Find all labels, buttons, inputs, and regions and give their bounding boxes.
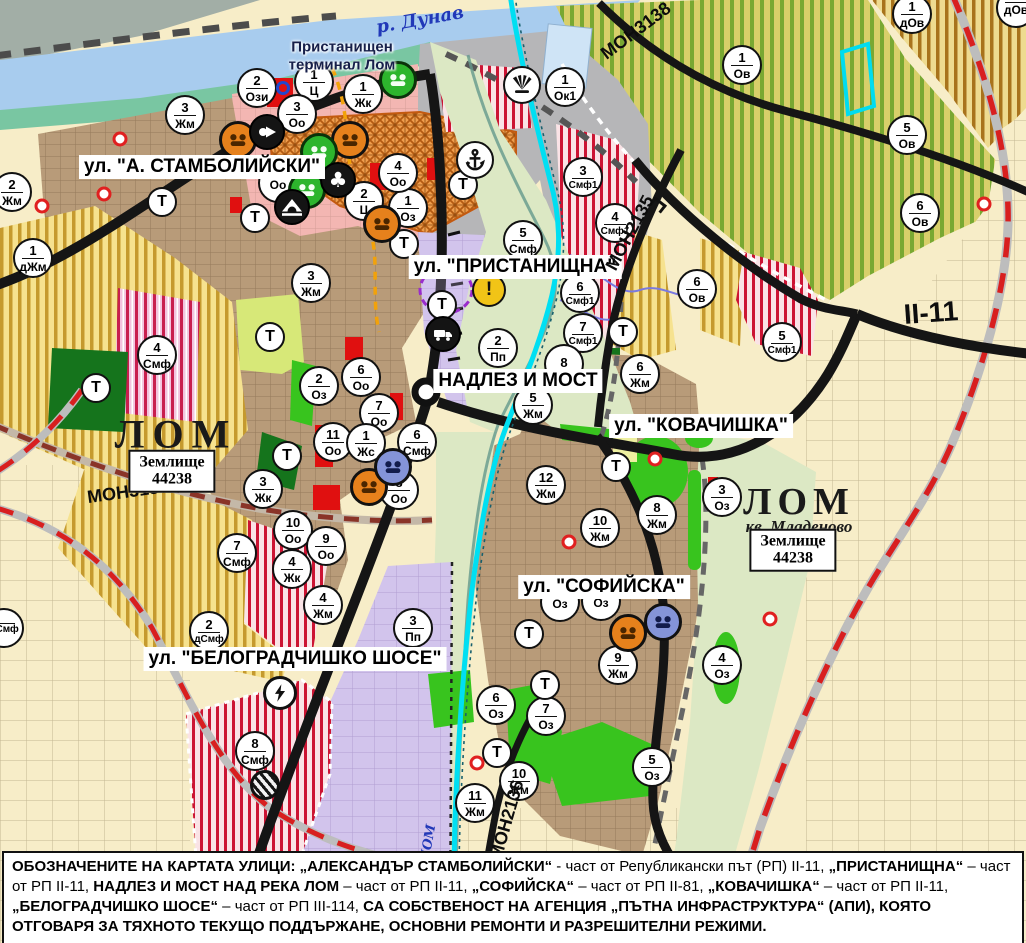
zone-marker: 2дСмф — [189, 611, 229, 651]
zone-marker-code: Жк — [255, 492, 272, 504]
zone-marker-number: 4 — [153, 341, 160, 354]
zone-marker-code: Оз — [593, 597, 608, 609]
zone-marker-code: Пп — [405, 631, 421, 643]
zone-marker-number: 5 — [903, 121, 910, 134]
zone-marker-number: 7 — [542, 702, 549, 715]
zone-marker-code: Оз — [311, 389, 326, 401]
zone-marker: 8Смф — [235, 731, 275, 771]
legend-note-segment: - част от Републикански път (РП) II-11, — [552, 858, 828, 875]
zone-marker-number: 7 — [233, 539, 240, 552]
zone-marker-number: 4 — [288, 555, 295, 568]
zone-marker: 4Оз — [702, 645, 742, 685]
zone-marker: 5Жм — [513, 385, 553, 425]
zone-marker: 6Оо — [341, 357, 381, 397]
zone-marker: 1дОв — [892, 0, 932, 34]
legend-note-segment: „БЕЛОГРАДЧИШКО ШОСЕ“ — [12, 898, 218, 915]
heritage-green-icon — [379, 61, 417, 99]
zone-marker-number: 6 — [636, 360, 643, 373]
t-marker: Т — [601, 452, 631, 482]
fraction-bar — [589, 528, 611, 529]
legend-note-segment: – част от РП II-11, — [339, 878, 472, 895]
fraction-bar — [226, 553, 248, 554]
zone-marker: 1Ов — [722, 45, 762, 85]
red-dot-marker — [470, 756, 485, 771]
red-dot-marker — [562, 535, 577, 550]
zone-marker-code: Смф1 — [566, 297, 595, 307]
zone-marker-number: 1 — [362, 429, 369, 442]
zone-marker: 5Смф — [503, 220, 543, 260]
zone-marker-number: 2 — [253, 74, 260, 87]
zone-marker-code: Жм — [175, 118, 195, 130]
fraction-bar — [308, 386, 330, 387]
zone-marker: 6Жм — [620, 354, 660, 394]
t-marker: Т — [255, 322, 285, 352]
zone-marker-number: 5 — [648, 753, 655, 766]
fraction-bar — [487, 348, 509, 349]
zone-marker-code: Оз — [552, 598, 567, 610]
fraction-bar — [388, 490, 410, 491]
zone-marker-number: 1 — [738, 51, 745, 64]
arrow-right-icon — [249, 114, 285, 150]
red-dot-marker — [648, 452, 663, 467]
zone-marker: 3Жк — [243, 469, 283, 509]
zone-marker-code: Жм — [301, 286, 321, 298]
zone-marker-code: Жм — [590, 531, 610, 543]
zone-marker-code: Оз — [538, 719, 553, 731]
zone-marker: 3Жм — [291, 263, 331, 303]
zone-marker-number: 2 — [494, 334, 501, 347]
zone-marker-number: 6 — [576, 280, 583, 293]
zone-marker: 6Ов — [900, 193, 940, 233]
truck-icon — [425, 316, 461, 352]
fraction-bar — [572, 178, 594, 179]
zone-marker-code: дЖм — [19, 261, 46, 273]
zone-marker-number: 3 — [718, 483, 725, 496]
zone-marker-code: Ов — [689, 292, 706, 304]
fraction-bar — [572, 334, 594, 335]
red-dot-marker — [977, 197, 992, 212]
zone-marker-code: Оо — [289, 117, 306, 129]
fraction-bar — [512, 240, 534, 241]
zone-marker: 8Жм — [637, 495, 677, 535]
t-marker: Т — [482, 738, 512, 768]
fraction-bar — [901, 14, 923, 15]
zone-marker: 10Жм — [499, 761, 539, 801]
zone-marker-number: 10 — [512, 767, 526, 780]
zone-marker-code: Смф1 — [768, 346, 797, 356]
zone-marker-code: Смф — [143, 358, 171, 370]
zone-marker-number: 2 — [8, 178, 15, 191]
zone-marker: 4Смф1 — [595, 203, 635, 243]
zone-marker-number: 1 — [908, 0, 915, 13]
fraction-bar — [553, 370, 575, 371]
zone-marker-code: Жм — [313, 608, 333, 620]
legend-note-segment: – част от РП II-81, — [574, 878, 708, 895]
fraction-bar — [397, 208, 419, 209]
anchor-icon — [456, 141, 494, 179]
legend-note-segment: НАДЛЕЗ И МОСТ НАД РЕКА ЛОМ — [93, 878, 339, 895]
zone-marker: 3Смф1 — [563, 157, 603, 197]
zone-marker: 4Оо — [378, 153, 418, 193]
fraction-bar — [629, 374, 651, 375]
t-marker: Т — [272, 441, 302, 471]
red-dot-marker — [35, 199, 50, 214]
zone-marker-number: 3 — [181, 101, 188, 114]
zone-marker-code: Смф1 — [569, 337, 598, 347]
fraction-bar — [303, 82, 325, 83]
zone-marker-number: 9 — [614, 651, 621, 664]
fraction-bar — [711, 497, 733, 498]
zone-marker: дСмф — [0, 608, 24, 648]
fraction-bar — [535, 716, 557, 717]
zone-marker-code: Оз — [400, 211, 415, 223]
fraction-bar — [282, 530, 304, 531]
zone-marker-number: 1 — [29, 244, 36, 257]
legend-note: ОБОЗНАЧЕНИТЕ НА КАРТАТА УЛИЦИ: „АЛЕКСАНД… — [2, 851, 1024, 943]
zone-marker-number: 1 — [561, 73, 568, 86]
zone-marker: 9Оо — [306, 526, 346, 566]
zone-marker: 3Жм — [165, 95, 205, 135]
fraction-bar — [244, 751, 266, 752]
zone-marker-number: 6 — [693, 275, 700, 288]
fraction-bar — [604, 224, 626, 225]
zone-marker-number: 5 — [778, 329, 785, 342]
fraction-bar — [312, 605, 334, 606]
zone-marker-code: Жм — [630, 377, 650, 389]
fraction-bar — [731, 65, 753, 66]
zone-marker: 5Ов — [887, 115, 927, 155]
fraction-bar — [522, 405, 544, 406]
fraction-bar — [22, 258, 44, 259]
fraction-bar — [353, 201, 375, 202]
zone-marker-code: Оз — [488, 708, 503, 720]
zone-marker-code: Жк — [284, 572, 301, 584]
zone-marker-number: 3 — [307, 269, 314, 282]
warning-icon: ! — [472, 273, 506, 307]
zone-marker-code: Оо — [391, 493, 408, 505]
legend-note-segment: – част от РП II-11, — [820, 878, 948, 895]
zone-marker-code: Жк — [355, 97, 372, 109]
heritage-blue-icon — [644, 603, 682, 641]
zone-marker: 4Смф — [137, 335, 177, 375]
fraction-bar — [315, 546, 337, 547]
fraction-bar — [896, 135, 918, 136]
legend-note-segment: – част от РП III-114, — [218, 898, 363, 915]
zone-marker-number: 6 — [916, 199, 923, 212]
legend-note-segment: „СОФИЙСКА“ — [472, 878, 574, 895]
heritage-orange-icon — [609, 614, 647, 652]
t-marker: Т — [81, 373, 111, 403]
zone-marker-code: Жс — [357, 446, 375, 458]
zone-marker-number: 8 — [560, 356, 567, 369]
fraction-bar — [909, 213, 931, 214]
zone-marker-number: 11 — [468, 789, 482, 802]
zone-marker-code: Жм — [608, 668, 628, 680]
zone-marker-code: Оо — [270, 179, 287, 191]
fraction-bar — [355, 443, 377, 444]
zone-marker-code: Оз — [644, 770, 659, 782]
zone-marker-code: Смф — [241, 754, 269, 766]
t-marker: Т — [514, 619, 544, 649]
fraction-bar — [368, 413, 390, 414]
zone-marker: 1дЖм — [13, 238, 53, 278]
zone-marker-number: 12 — [539, 471, 553, 484]
zone-marker-code: Оз — [714, 500, 729, 512]
zone-marker-number: 7 — [375, 399, 382, 412]
t-marker: Т — [147, 187, 177, 217]
zone-marker-number: 4 — [718, 651, 725, 664]
zone-marker: 4Жм — [303, 585, 343, 625]
zone-marker-code: Жм — [523, 408, 543, 420]
zone-marker-number: 4 — [319, 591, 326, 604]
t-marker: Т — [240, 203, 270, 233]
zone-marker-code: дОв — [1004, 4, 1026, 16]
zone-marker-number: 6 — [492, 691, 499, 704]
zone-marker: 2Пп — [478, 328, 518, 368]
heritage-blue-icon — [374, 448, 412, 486]
zone-marker-number: 11 — [326, 428, 340, 441]
fraction-bar — [174, 115, 196, 116]
zone-marker: 10Жм — [580, 508, 620, 548]
fraction-bar — [246, 88, 268, 89]
fraction-bar — [711, 665, 733, 666]
zone-marker-number: 4 — [611, 210, 618, 223]
zone-marker: 6Смф1 — [560, 273, 600, 313]
fraction-bar — [300, 283, 322, 284]
zone-marker-number: 6 — [357, 363, 364, 376]
heritage-orange-icon — [363, 205, 401, 243]
zone-marker-number: 1 — [404, 194, 411, 207]
zone-marker-code: Оо — [325, 445, 342, 457]
fraction-bar — [485, 705, 507, 706]
zone-marker: 3Оз — [702, 477, 742, 517]
zone-marker-number: 3 — [409, 614, 416, 627]
zone-marker-code: Ов — [734, 68, 751, 80]
fraction-bar — [771, 343, 793, 344]
zone-marker-number: 10 — [286, 516, 300, 529]
fraction-bar — [286, 114, 308, 115]
fraction-bar — [350, 377, 372, 378]
fraction-bar — [281, 569, 303, 570]
fan-icon — [503, 66, 541, 104]
zone-marker-code: Ц — [310, 85, 319, 97]
fraction-bar — [686, 289, 708, 290]
fraction-bar — [322, 442, 344, 443]
zone-marker-code: Жм — [647, 518, 667, 530]
zone-marker: 6Оз — [476, 685, 516, 725]
zone-marker: 2Оз — [299, 366, 339, 406]
zone-marker: Оз — [540, 582, 580, 622]
zone-marker-number: 2 — [315, 372, 322, 385]
tunnel-icon — [274, 189, 310, 225]
fraction-bar — [402, 628, 424, 629]
zone-marker-code: Оз — [714, 668, 729, 680]
zone-marker-code: Жм — [536, 488, 556, 500]
zone-marker-code: Жм — [465, 806, 485, 818]
zone-marker-code: дСмф — [0, 625, 19, 635]
legend-note-segment: „КОВАЧИШКА“ — [708, 878, 820, 895]
fraction-bar — [146, 355, 168, 356]
red-dot-marker — [97, 187, 112, 202]
fraction-bar — [508, 781, 530, 782]
zone-marker: 1Ок1 — [545, 67, 585, 107]
zone-marker-code: Смф — [223, 556, 251, 568]
zone-marker-code: Оо — [318, 549, 335, 561]
zone-marker-code: Оо — [390, 176, 407, 188]
lightning-icon — [263, 676, 297, 710]
legend-note-segment: ОБОЗНАЧЕНИТЕ НА КАРТАТА УЛИЦИ: „АЛЕКСАНД… — [12, 858, 552, 875]
zone-marker-number: 1 — [359, 80, 366, 93]
zone-marker-code: Ов — [899, 138, 916, 150]
zone-marker-number: 2 — [205, 618, 212, 631]
fraction-bar — [198, 632, 220, 633]
red-dot-marker — [763, 612, 778, 627]
zone-marker-number: 3 — [579, 164, 586, 177]
zone-marker-number: 1 — [310, 68, 317, 81]
hatched-circle-icon — [250, 770, 280, 800]
zone-marker-code: Оо — [353, 380, 370, 392]
marker-layer: 2Ози1Ц1Жк3Оо3Жм1Ок11Ов1дОвдОв5Ов2Жм1дЖм2… — [0, 0, 1026, 943]
fraction-bar — [252, 489, 274, 490]
zone-marker-code: Жм — [2, 195, 22, 207]
zone-marker-number: 8 — [251, 737, 258, 750]
fraction-bar — [387, 173, 409, 174]
club-icon: ♣ — [320, 162, 356, 198]
red-dot-marker — [113, 132, 128, 147]
zone-marker-number: 8 — [653, 501, 660, 514]
zone-marker: 7Оз — [526, 696, 566, 736]
zone-marker-number: 10 — [593, 514, 607, 527]
fraction-bar — [569, 294, 591, 295]
zone-marker-code: Оо — [285, 533, 302, 545]
zone-marker-code: дСмф — [194, 635, 224, 645]
fraction-bar — [607, 665, 629, 666]
zone-marker-code: дОв — [900, 17, 924, 29]
legend-note-segment: „ПРИСТАНИЩНА“ — [829, 858, 964, 875]
zone-marker-code: Смф1 — [569, 181, 598, 191]
zone-marker: 1Жк — [343, 74, 383, 114]
zone-marker-code: Пп — [490, 351, 506, 363]
fraction-bar — [464, 803, 486, 804]
fraction-bar — [641, 767, 663, 768]
blue-ring-marker — [276, 81, 290, 95]
zone-marker: 4Жк — [272, 549, 312, 589]
zone-marker: 3Пп — [393, 608, 433, 648]
zone-marker-code: Ов — [912, 216, 929, 228]
fraction-bar — [1, 192, 23, 193]
zone-marker-number: 6 — [413, 428, 420, 441]
zone-marker: 12Жм — [526, 465, 566, 505]
zone-marker: 2Ози — [237, 68, 277, 108]
zone-marker: 2Жм — [0, 172, 32, 212]
fraction-bar — [406, 442, 428, 443]
t-marker: Т — [608, 317, 638, 347]
zone-marker: 11Жм — [455, 783, 495, 823]
t-marker: Т — [530, 670, 560, 700]
zone-marker-number: 5 — [529, 391, 536, 404]
zone-marker-code: Жм — [509, 784, 529, 796]
zone-marker-number: 4 — [394, 159, 401, 172]
zone-marker: 6Ов — [677, 269, 717, 309]
zone-marker: 8 — [544, 344, 584, 384]
zone-marker-code: Смф1 — [601, 227, 630, 237]
zone-marker: 5Оз — [632, 747, 672, 787]
zone-marker-number: 9 — [322, 532, 329, 545]
fraction-bar — [352, 94, 374, 95]
fraction-bar — [554, 87, 576, 88]
zone-marker-number: 3 — [259, 475, 266, 488]
zone-marker: дОв — [996, 0, 1026, 28]
zoning-map-canvas[interactable]: 2Ози1Ц1Жк3Оо3Жм1Ок11Ов1дОвдОв5Ов2Жм1дЖм2… — [0, 0, 1026, 943]
zone-marker: Оз — [581, 581, 621, 621]
fraction-bar — [535, 485, 557, 486]
zone-marker-number: 7 — [579, 320, 586, 333]
zone-marker-code: Ози — [246, 91, 269, 103]
zone-marker: 5Смф1 — [762, 322, 802, 362]
zone-marker-code: Ок1 — [554, 90, 576, 102]
zone-marker-number: 5 — [519, 226, 526, 239]
zone-marker: 7Смф — [217, 533, 257, 573]
fraction-bar — [646, 515, 668, 516]
zone-marker-number: 3 — [293, 100, 300, 113]
zone-marker-number: 2 — [360, 187, 367, 200]
bridge-symbol-icon — [649, 196, 667, 213]
zone-marker-code: Смф — [509, 243, 537, 255]
